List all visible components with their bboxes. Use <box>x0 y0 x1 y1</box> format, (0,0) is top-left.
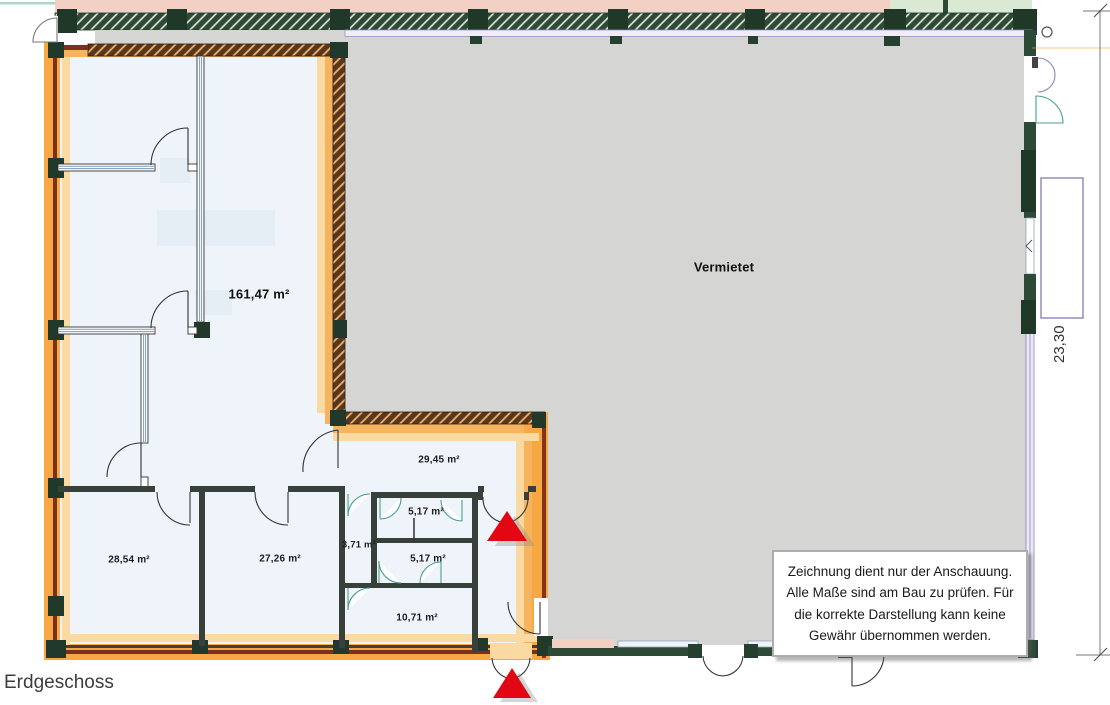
room-label-wc-lower: 5,17 m² <box>410 554 446 565</box>
room-label-storage: 10,71 m² <box>396 613 438 624</box>
room-label-wc-upper: 5,17 m² <box>408 507 444 518</box>
room-label-vermietet: Vermietet <box>694 260 754 275</box>
dimension-label-right: 23,30 <box>1051 345 1107 363</box>
floor-title: Erdgeschoss <box>4 672 114 694</box>
room-label-room-a: 28,54 m² <box>108 555 150 566</box>
right-door-lower <box>1036 96 1063 123</box>
room-label-room-b: 27,26 m² <box>259 554 301 565</box>
room-label-hall: 29,45 m² <box>418 455 460 466</box>
right-exterior-details <box>1032 27 1110 318</box>
floorplan-canvas: 161,47 m² Vermietet 29,45 m² 28,54 m² 27… <box>0 0 1110 705</box>
top-left-exterior-door <box>30 16 58 42</box>
disclaimer-text: Zeichnung dient nur der Anschauung. Alle… <box>786 564 1013 643</box>
disclaimer-box: Zeichnung dient nur der Anschauung. Alle… <box>772 550 1028 657</box>
exterior-platform <box>1041 178 1083 318</box>
partition-vertical-main <box>197 56 204 322</box>
column-marker-circle <box>1042 27 1052 37</box>
outside-areas <box>0 0 1032 14</box>
right-door-upper <box>1038 58 1055 92</box>
room-label-main-area: 161,47 m² <box>228 287 289 302</box>
dimension-line-right <box>1076 4 1110 661</box>
room-label-niche: 3,71 m² <box>342 540 376 551</box>
